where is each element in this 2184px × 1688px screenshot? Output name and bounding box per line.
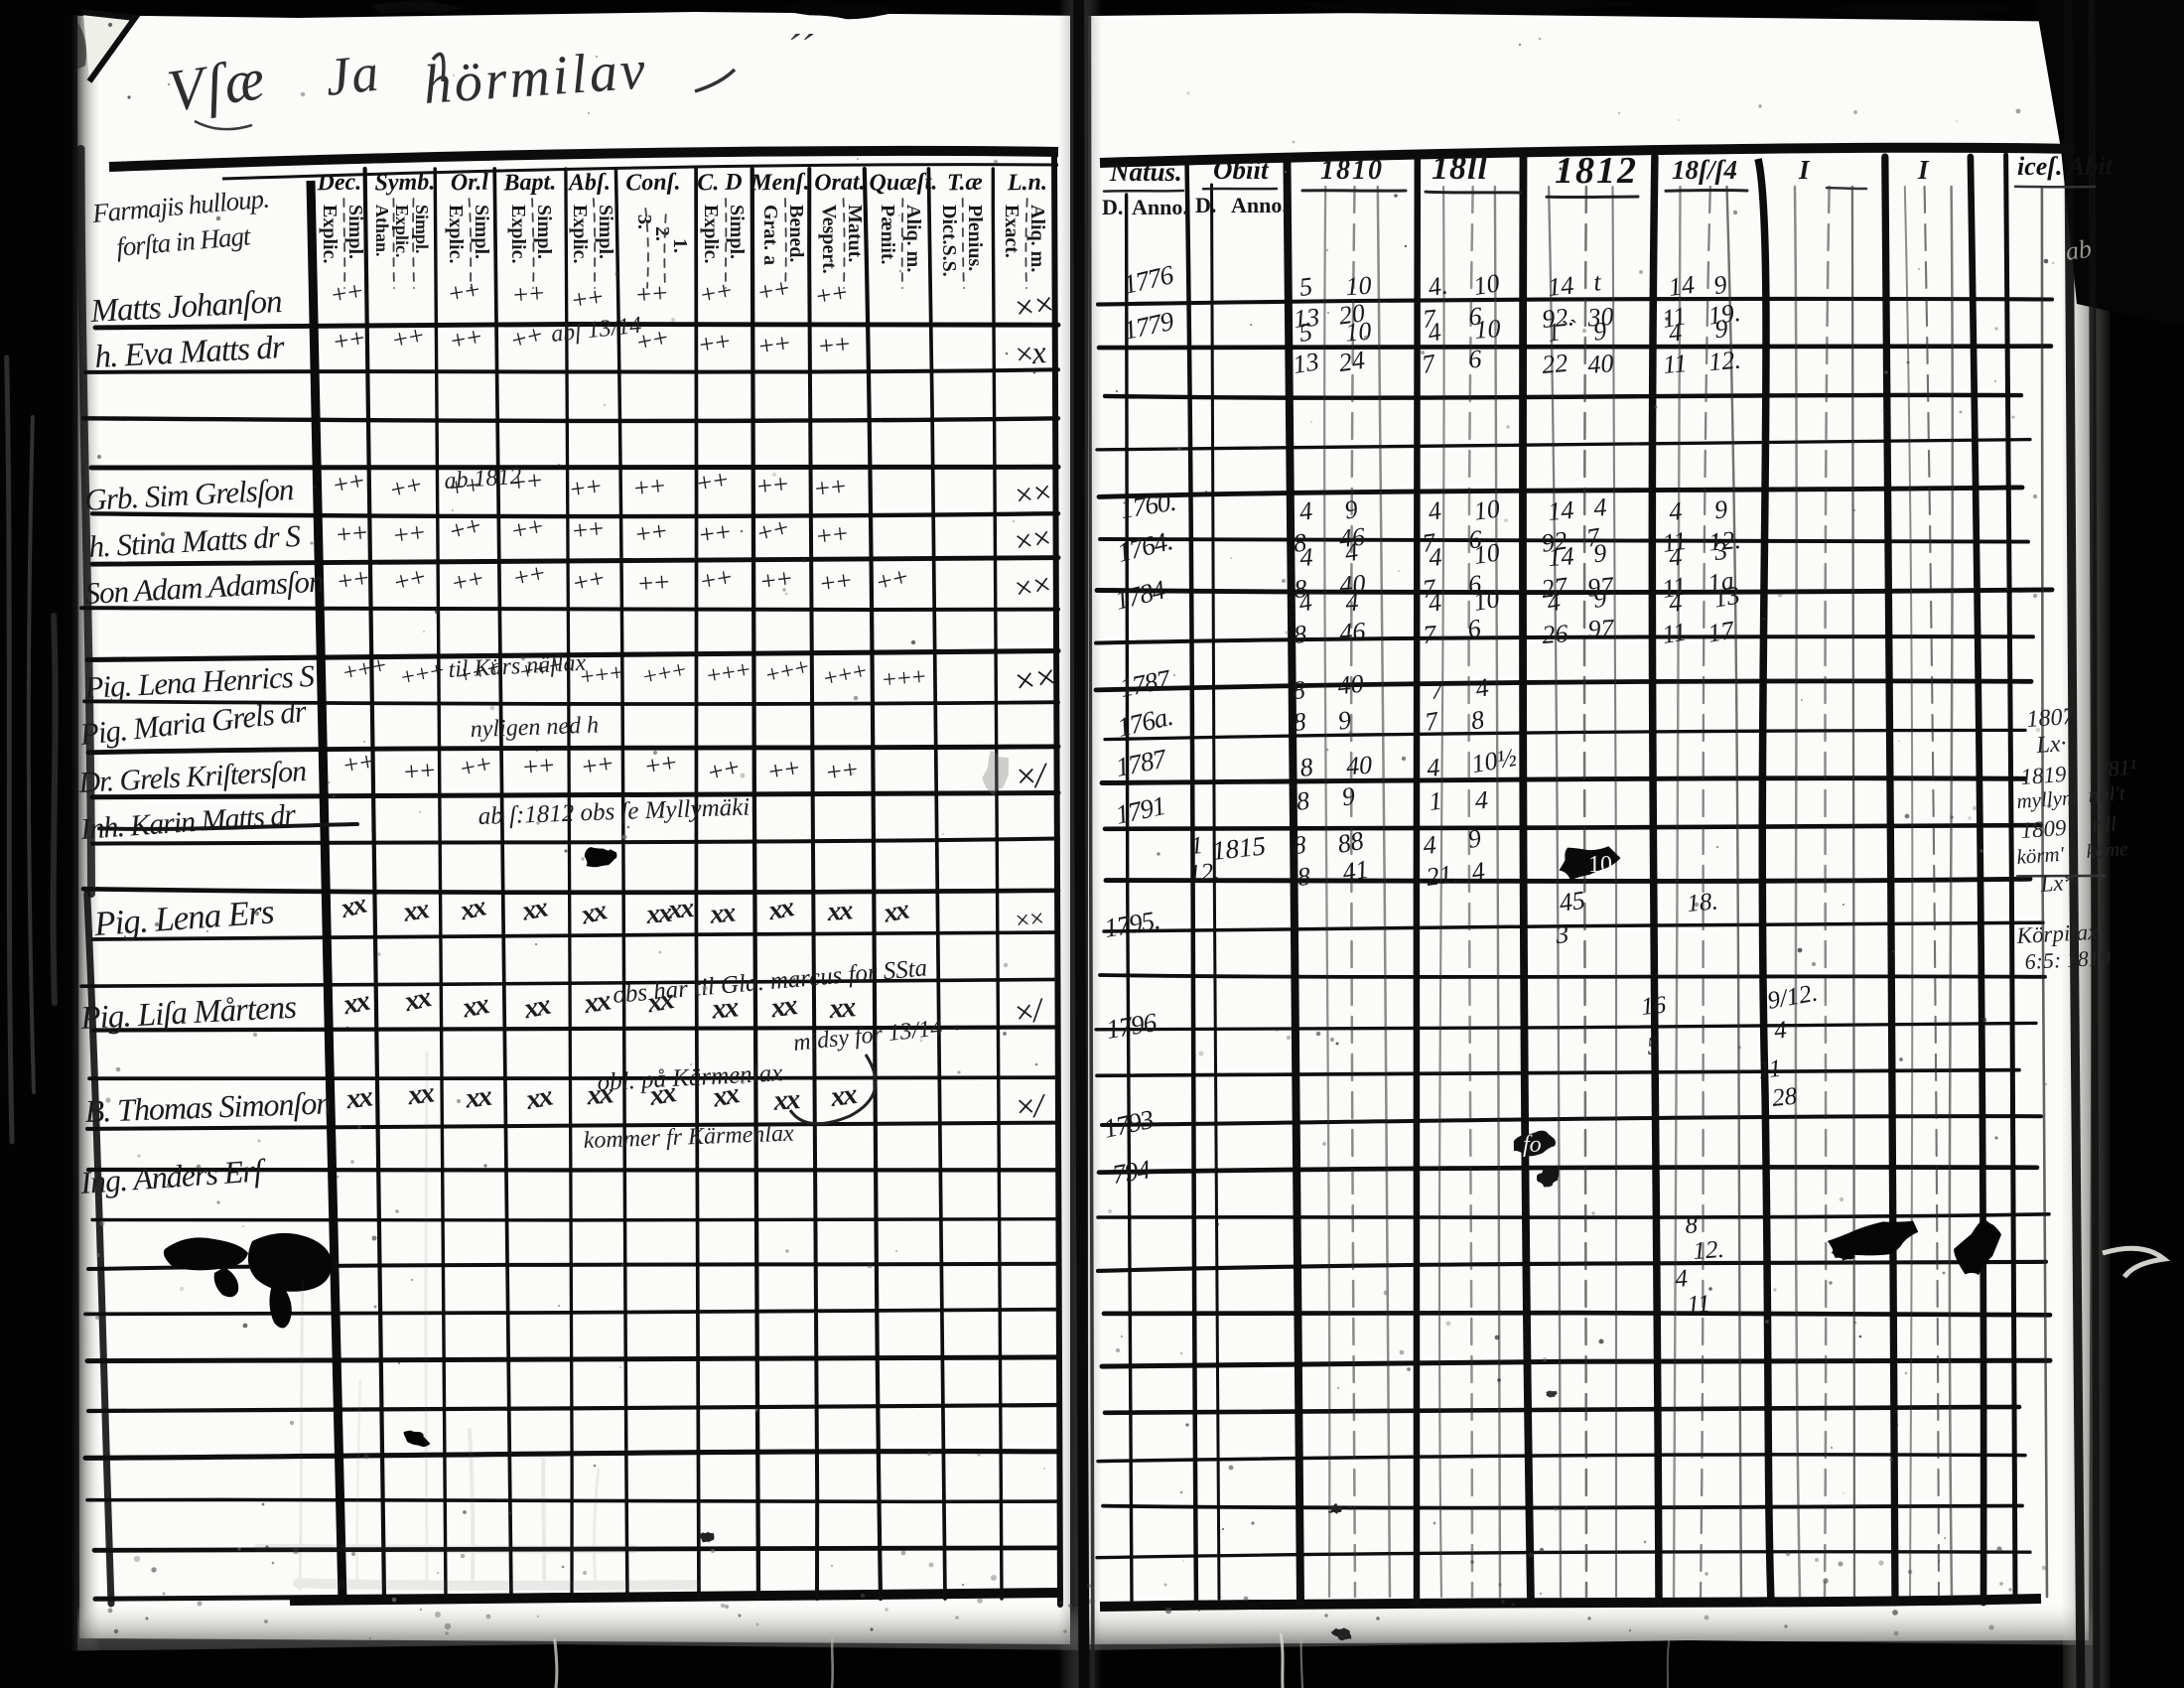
svg-text:++: ++ <box>509 558 547 594</box>
svg-text:4: 4 <box>1675 1265 1689 1293</box>
svg-text:1819: 1819 <box>2020 762 2068 789</box>
svg-text:12.: 12. <box>1707 346 1742 377</box>
svg-text:++: ++ <box>330 465 366 500</box>
svg-text:Lx*: Lx* <box>2039 870 2077 897</box>
svg-text:Symb.: Symb. <box>374 169 435 196</box>
svg-text:Aliq. m.: Aliq. m. <box>1026 205 1048 272</box>
svg-text:6: 6 <box>1467 345 1482 374</box>
svg-text:1809: 1809 <box>2020 815 2068 843</box>
svg-text:10: 10 <box>1474 314 1502 344</box>
svg-text:C. D: C. D <box>697 170 743 197</box>
svg-text:41: 41 <box>1340 855 1370 888</box>
svg-text:Quæſt.: Quæſt. <box>869 169 937 196</box>
svg-text:++: ++ <box>757 563 793 597</box>
svg-text:3: 3 <box>1554 919 1570 949</box>
svg-text:18ll: 18ll <box>1432 150 1488 187</box>
svg-text:++: ++ <box>448 563 485 599</box>
svg-text:xx: xx <box>827 991 857 1025</box>
svg-text:++: ++ <box>816 329 851 361</box>
svg-text:97: 97 <box>1587 614 1616 644</box>
svg-text:I: I <box>1798 155 1811 185</box>
svg-text:++: ++ <box>334 562 370 597</box>
svg-text:1.: 1. <box>669 238 691 253</box>
svg-text:4: 4 <box>1668 588 1684 618</box>
svg-text:++: ++ <box>754 273 791 308</box>
svg-text:++: ++ <box>693 464 730 498</box>
svg-text:++: ++ <box>334 517 368 550</box>
svg-text:++: ++ <box>813 518 849 551</box>
svg-text:D.: D. <box>1195 193 1216 217</box>
svg-text:Simpl.: Simpl. <box>726 205 748 259</box>
svg-text:++: ++ <box>635 567 670 599</box>
svg-text:9: 9 <box>1592 538 1608 568</box>
svg-text:Explic.: Explic. <box>569 205 591 263</box>
svg-text:Explic.: Explic. <box>319 205 341 263</box>
svg-text:4: 4 <box>1668 542 1684 572</box>
svg-text:++: ++ <box>340 746 376 780</box>
svg-text:Abſ.: Abſ. <box>567 170 611 197</box>
svg-text:L.n.: L.n. <box>1007 170 1047 197</box>
svg-text:Plenius.: Plenius. <box>964 205 986 271</box>
svg-text:ab: ab <box>2064 234 2094 266</box>
svg-text:8: 8 <box>1292 707 1306 737</box>
svg-text:10: 10 <box>1472 494 1502 526</box>
svg-text:++: ++ <box>812 471 847 503</box>
svg-text:++: ++ <box>388 320 426 355</box>
svg-text:8: 8 <box>1292 675 1306 705</box>
svg-text:++: ++ <box>754 469 789 501</box>
svg-text:Vespert.: Vespert. <box>818 205 840 274</box>
svg-text:++: ++ <box>579 748 614 781</box>
svg-text:14: 14 <box>1547 495 1574 526</box>
svg-text:++: ++ <box>641 747 678 781</box>
svg-text:++: ++ <box>508 511 545 546</box>
svg-text:1``: 1`` <box>1545 314 1579 347</box>
svg-text:Menſ.: Menſ. <box>750 169 810 196</box>
svg-text:++: ++ <box>328 275 364 310</box>
svg-text:10: 10 <box>1472 538 1502 570</box>
svg-text:nyligen ned h: nyligen ned h <box>470 712 599 742</box>
svg-text:11: 11 <box>1662 349 1688 379</box>
svg-text:1812: 1812 <box>1555 150 1638 192</box>
svg-text:Explic.: Explic. <box>392 205 412 258</box>
svg-text:++: ++ <box>510 278 545 310</box>
svg-text:8: 8 <box>1292 830 1306 860</box>
svg-text:++: ++ <box>697 275 734 310</box>
svg-text:1815: 1815 <box>1210 830 1267 865</box>
svg-text:40: 40 <box>1336 669 1365 700</box>
svg-text:Bened.: Bened. <box>785 205 807 262</box>
svg-text:24: 24 <box>1337 346 1367 377</box>
svg-text:++: ++ <box>695 326 732 360</box>
svg-text:++: ++ <box>817 565 853 599</box>
svg-text:Körpilax: Körpilax <box>2015 919 2100 948</box>
svg-text:T.æ: T.æ <box>947 170 983 197</box>
svg-text:14: 14 <box>1547 271 1575 302</box>
svg-text:9: 9 <box>1713 314 1728 344</box>
svg-text:794: 794 <box>1110 1154 1152 1190</box>
svg-text:40: 40 <box>1586 349 1614 379</box>
svg-text:13: 13 <box>1291 347 1320 379</box>
svg-text:xx: xx <box>405 1076 436 1111</box>
svg-text:Simpl.: Simpl. <box>533 205 555 259</box>
svg-text:++: ++ <box>445 274 481 309</box>
svg-text:++: ++ <box>696 516 732 550</box>
svg-text:++: ++ <box>330 323 366 357</box>
svg-text:nbl't: nbl't <box>2088 780 2127 807</box>
svg-text:xx: xx <box>708 898 738 930</box>
svg-text:Lx·: Lx· <box>2035 731 2068 759</box>
svg-text:14: 14 <box>1667 270 1696 302</box>
svg-text:14: 14 <box>1548 541 1575 572</box>
svg-text:Athan.: Athan. <box>372 205 392 257</box>
svg-text:++: ++ <box>823 754 859 787</box>
svg-text:++: ++ <box>447 321 483 355</box>
svg-text:4.: 4. <box>1427 270 1449 302</box>
svg-text:Explic.: Explic. <box>445 205 467 263</box>
svg-text:xx: xx <box>825 895 854 927</box>
svg-text:1807: 1807 <box>2026 704 2077 733</box>
svg-text:26: 26 <box>1541 619 1569 649</box>
svg-text:28: 28 <box>1771 1082 1799 1112</box>
svg-text:++: ++ <box>570 513 605 546</box>
svg-text:10: 10 <box>1345 271 1373 302</box>
svg-text:Obiit: Obiit <box>1213 155 1270 185</box>
svg-text:Conſ.: Conſ. <box>625 170 681 197</box>
svg-text:Aliq. m.: Aliq. m. <box>902 205 924 272</box>
svg-text:r'll: r'll <box>2092 811 2117 837</box>
svg-text:10: 10 <box>1471 268 1501 301</box>
svg-text:xx: xx <box>463 1080 493 1115</box>
svg-text:18.: 18. <box>1686 888 1718 917</box>
svg-text:´´: ´´ <box>786 26 813 70</box>
svg-text:10: 10 <box>1471 584 1502 617</box>
svg-text:××: ×× <box>1013 904 1044 935</box>
svg-text:88: 88 <box>1335 826 1366 859</box>
svg-text:18ſ/ſ4: 18ſ/ſ4 <box>1672 155 1737 185</box>
svg-text:+++: +++ <box>880 663 926 694</box>
svg-text:16: 16 <box>1640 991 1668 1021</box>
svg-text:++: ++ <box>456 749 493 784</box>
svg-text:I: I <box>1917 155 1930 185</box>
svg-text:Explic.: Explic. <box>700 205 722 263</box>
svg-text:4: 4 <box>1592 492 1607 522</box>
svg-text:Simpl.: Simpl. <box>344 205 366 259</box>
svg-text:11: 11 <box>1757 1055 1783 1084</box>
svg-text:Simpl.: Simpl. <box>595 205 616 259</box>
svg-text:××: ×× <box>1010 656 1057 702</box>
svg-text:++: ++ <box>390 517 426 551</box>
svg-text:Matut.: Matut. <box>844 205 866 262</box>
svg-text:++: ++ <box>632 515 668 549</box>
svg-text:++: ++ <box>567 471 603 504</box>
svg-text:4: 4 <box>1423 830 1437 860</box>
svg-text:++: ++ <box>633 278 668 310</box>
svg-text:ab 1812: ab 1812 <box>444 464 523 494</box>
svg-text:++: ++ <box>697 562 734 597</box>
svg-text:++: ++ <box>812 277 849 312</box>
svg-text:Simpl.: Simpl. <box>412 205 432 254</box>
svg-text:++: ++ <box>764 753 801 787</box>
svg-text:xx: xx <box>771 1083 801 1117</box>
svg-text:++: ++ <box>755 328 791 361</box>
svg-text:köme: köme <box>2086 838 2129 863</box>
svg-text:4: 4 <box>1428 542 1442 572</box>
svg-text:D.: D. <box>1102 195 1123 219</box>
svg-text:++: ++ <box>568 281 605 315</box>
svg-text:11: 11 <box>1687 1290 1711 1319</box>
svg-text:Natus.: Natus. <box>1109 157 1182 187</box>
svg-text:Bapt.: Bapt. <box>502 170 556 197</box>
svg-text:10: 10 <box>1344 317 1372 348</box>
svg-text:fo: fo <box>1523 1132 1542 1158</box>
svg-text:4: 4 <box>1345 588 1360 618</box>
svg-text:13: 13 <box>1711 581 1741 614</box>
svg-text:Simpl.: Simpl. <box>471 205 492 259</box>
svg-text:××: ×× <box>1011 519 1052 560</box>
svg-text:10: 10 <box>1588 852 1612 878</box>
svg-text:Orat.: Orat. <box>814 170 866 197</box>
svg-text:4: 4 <box>1668 496 1683 526</box>
svg-text:Dict.S.S.: Dict.S.S. <box>938 205 960 277</box>
svg-text:xx: xx <box>666 893 695 925</box>
svg-text:22: 22 <box>1541 349 1569 379</box>
svg-text:6:5: 1819: 6:5: 1819 <box>2024 945 2111 974</box>
svg-text:Exact.: Exact. <box>1001 205 1023 258</box>
svg-text:++: ++ <box>401 755 436 786</box>
svg-text:45: 45 <box>1558 886 1587 917</box>
svg-text:Anno.: Anno. <box>1132 195 1188 219</box>
svg-text:××: ×× <box>1012 474 1052 513</box>
svg-text:iceſ. Abit: iceſ. Abit <box>2017 152 2114 181</box>
svg-text:Explic.: Explic. <box>507 205 529 263</box>
svg-text:++: ++ <box>631 471 666 503</box>
svg-text:46: 46 <box>1338 617 1366 647</box>
svg-text:××: ×× <box>1011 566 1052 607</box>
svg-text:8: 8 <box>1685 1211 1700 1239</box>
svg-text:Anno.: Anno. <box>1231 193 1288 217</box>
svg-text:Grat. a: Grat. a <box>759 205 781 265</box>
svg-text:40: 40 <box>1345 751 1373 780</box>
svg-text:++: ++ <box>520 750 555 781</box>
svg-text:4: 4 <box>1474 785 1489 815</box>
svg-text:1810: 1810 <box>1320 155 1384 186</box>
svg-text:××: ×× <box>1011 286 1054 328</box>
svg-text:12.: 12. <box>1693 1236 1725 1265</box>
svg-text:11: 11 <box>1660 617 1688 648</box>
svg-text:4: 4 <box>1426 753 1440 782</box>
svg-text:Ja: Ja <box>323 43 383 107</box>
svg-text:1: 1 <box>1189 832 1204 860</box>
svg-text:Vſæ: Vſæ <box>164 46 271 124</box>
svg-text:Pæniit.: Pæniit. <box>877 205 898 265</box>
svg-text:4: 4 <box>1299 542 1314 572</box>
svg-text:myllym: myllym <box>2016 785 2078 813</box>
svg-text:Or.l: Or.l <box>451 170 489 197</box>
svg-text:/81¹: /81¹ <box>2100 755 2137 782</box>
svg-text:21.: 21. <box>1425 859 1460 892</box>
svg-text:Dec.: Dec. <box>316 170 361 197</box>
